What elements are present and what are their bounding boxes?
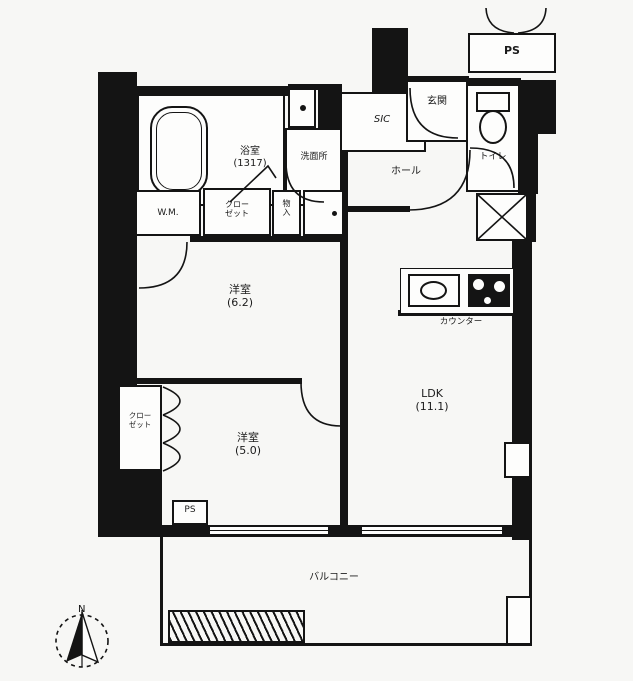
balcony-slatted-deck <box>168 610 305 643</box>
utility-handle-icon <box>332 211 337 216</box>
wall-right-midgap <box>524 194 536 242</box>
wall-corridor-bedroomA <box>190 236 348 242</box>
ps-lower-label: PS <box>174 505 206 516</box>
utility-box <box>303 190 344 236</box>
bathtub <box>150 106 208 196</box>
balcony-label: バルコニー <box>292 572 376 584</box>
closet-folding-door-arc <box>163 415 180 443</box>
sic-label: SIC <box>352 114 412 126</box>
window-ldk <box>362 526 502 535</box>
wall-right-upper <box>518 134 538 194</box>
stove-burner-icon <box>484 297 491 304</box>
compass: N <box>56 604 108 667</box>
balcony-edge-bottom <box>160 643 532 646</box>
ldk-label: LDK (11.1) <box>392 388 472 414</box>
floor-plan: 浴室 (1317) 洗面所 SIC 玄関 トイレ ホール PS W.M. クロー… <box>0 0 633 681</box>
washroom-label: 洗面所 <box>286 152 342 163</box>
closet-left-label: クロー ゼット <box>121 412 159 430</box>
toilet-bowl-icon <box>479 110 507 144</box>
wall-left-bottom <box>98 470 162 537</box>
entrance-label: 玄関 <box>408 96 466 108</box>
compass-needle-dark <box>66 612 82 662</box>
wall-hall-bottom <box>348 206 410 212</box>
compass-needle-light <box>82 612 98 662</box>
balcony-edge-left <box>160 537 163 645</box>
wall-right-corner <box>518 80 556 134</box>
bedroomB-label: 洋室 (5.0) <box>208 432 288 458</box>
closet-folding-door-arc <box>163 443 180 471</box>
wall-pillar-top <box>372 28 408 94</box>
compass-circle <box>56 615 108 667</box>
hall-label: ホール <box>376 166 436 178</box>
hall-door-arc <box>408 150 470 210</box>
closet-folding-door-arc <box>163 387 180 415</box>
stove-burner-icon <box>473 279 484 290</box>
wall-bedroomA-bedroomB <box>137 378 302 384</box>
kitchen-sink-basin-icon <box>420 281 447 300</box>
closet-upper-label: クロー ゼット <box>208 200 266 219</box>
bathroom-label: 浴室 (1317) <box>212 146 288 170</box>
shaft-x-box <box>477 194 527 240</box>
bathroom-size: (1317) <box>212 158 288 170</box>
window-bedroomB <box>210 526 328 535</box>
wall-niche-right <box>504 442 531 478</box>
wall-block-mid <box>318 88 342 130</box>
kitchen-stove-icon <box>468 274 510 307</box>
compass-north-label: N <box>78 604 85 615</box>
bedroomB-door-arc <box>301 382 341 426</box>
ps-top-label: PS <box>490 45 534 58</box>
meter-box <box>288 88 316 128</box>
storage-label: 物 入 <box>277 199 296 218</box>
bedroomA-door-arc <box>139 242 187 288</box>
double-door-arc-left <box>486 8 514 33</box>
bedroomA-label: 洋室 (6.2) <box>200 284 280 310</box>
entrance-room <box>406 80 468 142</box>
wm-label: W.M. <box>140 208 196 219</box>
toilet-tank-icon <box>476 92 510 112</box>
bathroom-name: 浴室 <box>212 146 288 158</box>
balcony-partition <box>506 596 532 645</box>
toilet-label: トイレ <box>468 152 518 163</box>
bathtub-inner-line <box>156 112 202 190</box>
double-door-arc-right <box>518 8 546 33</box>
meter-dot-icon <box>300 105 306 111</box>
wall-right-main <box>512 240 532 540</box>
shaft-x-cross <box>477 194 527 240</box>
stove-burner-icon <box>494 281 505 292</box>
counter-label: カウンター <box>426 317 496 327</box>
